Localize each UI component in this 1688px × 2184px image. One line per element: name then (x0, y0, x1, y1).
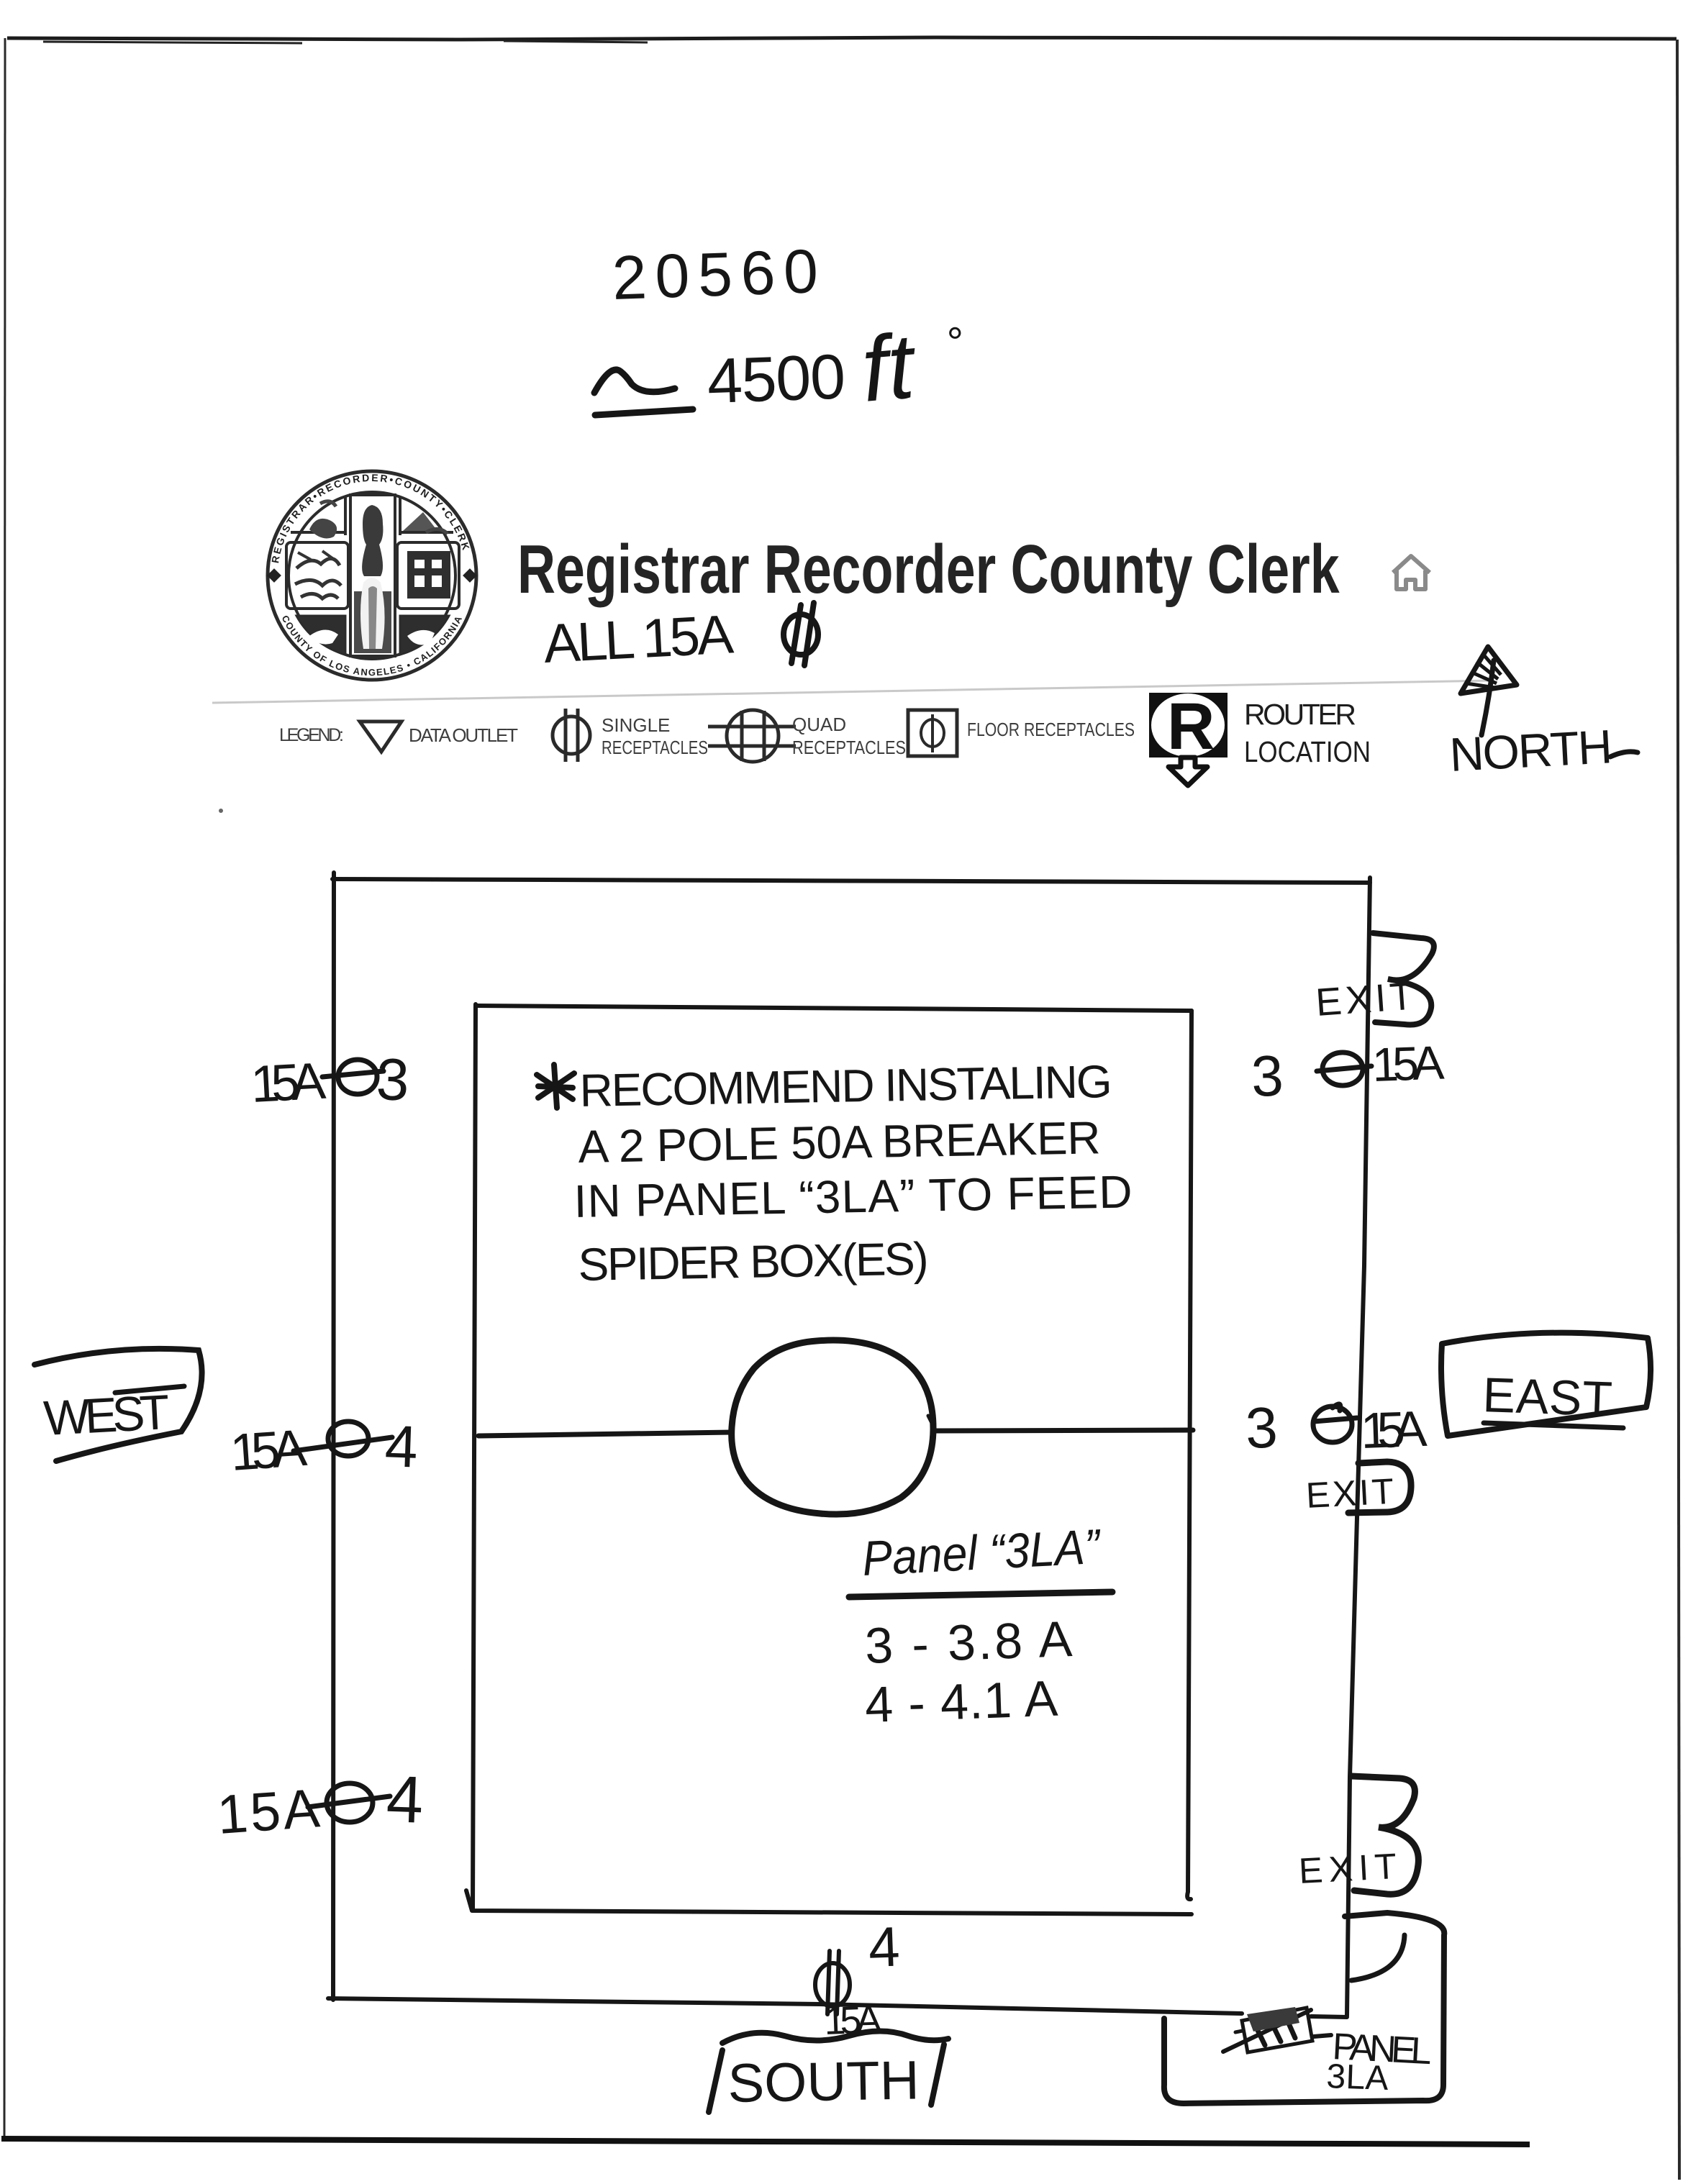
svg-text:15A: 15A (215, 1778, 322, 1846)
svg-text:NORTH: NORTH (1448, 719, 1614, 781)
svg-text:4: 4 (384, 1414, 419, 1480)
svg-text:15A: 15A (250, 1052, 327, 1114)
svg-text:4: 4 (385, 1762, 425, 1837)
svg-text:EAST: EAST (1481, 1368, 1613, 1427)
svg-text:RECEPTACLES: RECEPTACLES (602, 737, 708, 758)
svg-text:SINGLE: SINGLE (602, 714, 670, 736)
svg-text:EXIT: EXIT (1315, 975, 1415, 1024)
svg-text:EXIT: EXIT (1298, 1846, 1398, 1891)
svg-text:EXIT: EXIT (1305, 1471, 1395, 1516)
svg-text:3LA: 3LA (1326, 2057, 1389, 2098)
svg-text:IN PANEL “3LA” TO FEED: IN PANEL “3LA” TO FEED (573, 1165, 1133, 1227)
svg-text:20560: 20560 (611, 237, 829, 313)
svg-text:15A: 15A (1360, 1401, 1428, 1459)
svg-text:QUAD: QUAD (792, 714, 846, 735)
svg-text:Registrar Recorder County Cler: Registrar Recorder County Clerk (517, 532, 1340, 609)
svg-text:4: 4 (868, 1915, 901, 1979)
svg-text:15A: 15A (1371, 1036, 1446, 1091)
svg-text:LOCATION: LOCATION (1244, 735, 1371, 768)
svg-text:ALL 15A: ALL 15A (542, 604, 736, 675)
svg-text:WEST: WEST (42, 1385, 171, 1446)
svg-text:°: ° (945, 319, 966, 366)
svg-text:DATA OUTLET: DATA OUTLET (409, 724, 518, 746)
svg-text:3: 3 (375, 1047, 410, 1114)
svg-text:FLOOR RECEPTACLES: FLOOR RECEPTACLES (967, 719, 1135, 740)
svg-text:R: R (1167, 690, 1215, 763)
svg-text:3: 3 (1244, 1395, 1279, 1460)
svg-text:RECOMMEND INSTALING: RECOMMEND INSTALING (579, 1055, 1112, 1116)
svg-text:LEGEND:: LEGEND: (279, 725, 344, 745)
svg-text:ROUTER: ROUTER (1244, 698, 1356, 731)
svg-text:RECEPTACLES: RECEPTACLES (792, 737, 906, 758)
svg-text:A 2 POLE 50A BREAKER: A 2 POLE 50A BREAKER (578, 1111, 1101, 1173)
svg-text:SPIDER BOX(ES): SPIDER BOX(ES) (578, 1233, 929, 1291)
svg-text:3: 3 (1250, 1043, 1284, 1108)
svg-text:4500: 4500 (706, 340, 849, 417)
svg-text:4 - 4.1 A: 4 - 4.1 A (864, 1670, 1059, 1733)
svg-text:SOUTH: SOUTH (727, 2049, 920, 2114)
